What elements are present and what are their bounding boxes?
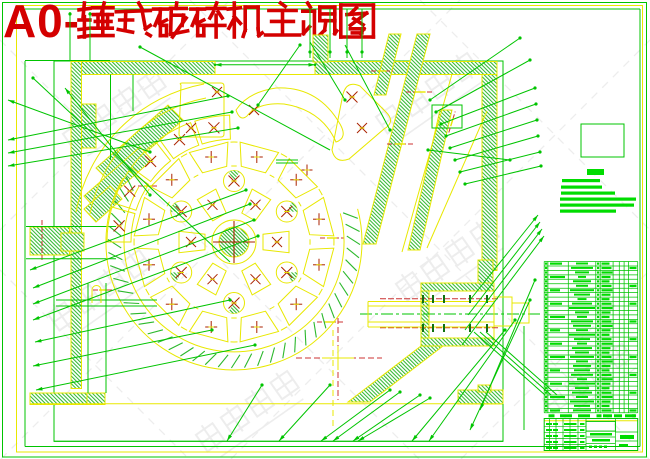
svg-text:A0-: A0- (3, 0, 79, 47)
